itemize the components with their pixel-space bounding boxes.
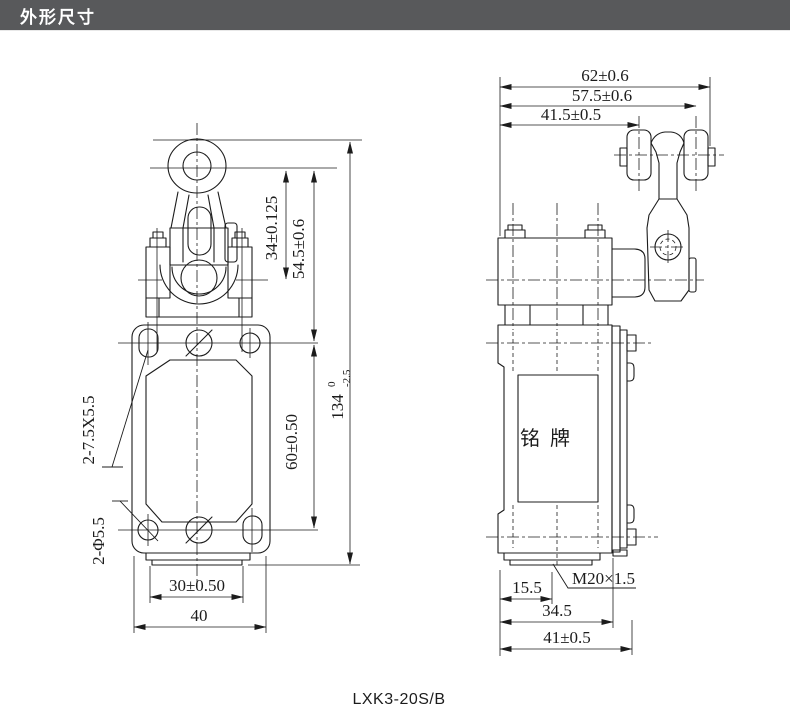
dim-base-depth: 34.5 xyxy=(542,601,572,620)
dimension-drawing: 34±0.125 54.5±0.6 60±0.50 134 0 -2.5 30±… xyxy=(0,0,790,718)
front-body xyxy=(132,325,270,553)
dim-body-width: 40 xyxy=(191,606,208,625)
page-header: 外形尺寸 xyxy=(0,0,790,31)
side-view-drawing: 铭牌 M20×1.5 62±0.6 57.5±0.6 41.5±0.5 15.5… xyxy=(486,66,724,656)
nameplate-label: 铭牌 xyxy=(520,427,580,450)
side-centerlines xyxy=(486,116,724,566)
dim-total-height-tol-upper: 0 xyxy=(326,381,338,387)
front-mounting-holes xyxy=(138,329,262,544)
dim-lever-height: 54.5±0.6 xyxy=(289,219,308,279)
side-base xyxy=(504,550,627,565)
front-head xyxy=(146,223,252,317)
dim-lever-travel: 34±0.125 xyxy=(262,196,281,261)
note-round-holes: 2-Φ5.5 xyxy=(89,517,108,565)
dim-mount-spacing: 60±0.50 xyxy=(282,414,301,470)
dim-total-height: 134 0 -2.5 xyxy=(326,369,353,420)
dim-total-height-main: 134 xyxy=(328,394,347,420)
front-hole-leaders xyxy=(102,350,158,541)
dim-mount-width: 30±0.50 xyxy=(169,576,225,595)
dim-lever-center: 41.5±0.5 xyxy=(541,105,601,124)
page-title: 外形尺寸 xyxy=(0,3,96,28)
dim-thread-spec: M20×1.5 xyxy=(572,569,635,588)
front-view-drawing: 34±0.125 54.5±0.6 60±0.50 134 0 -2.5 30±… xyxy=(79,123,362,633)
model-label: LXK3-20S/B xyxy=(352,691,445,708)
front-dimension-lines xyxy=(134,142,350,633)
dim-total-height-tol-lower: -2.5 xyxy=(341,369,353,387)
side-roller-lever xyxy=(612,130,715,301)
dim-conduit-offset: 15.5 xyxy=(512,578,542,597)
side-head xyxy=(498,225,612,325)
note-slot-holes: 2-7.5X5.5 xyxy=(79,396,98,465)
front-roller-lever xyxy=(168,139,228,265)
front-base xyxy=(146,553,250,565)
dim-roller-center: 57.5±0.6 xyxy=(572,86,632,105)
dim-overall-depth: 41±0.5 xyxy=(543,628,591,647)
dim-overall-width: 62±0.6 xyxy=(581,66,629,85)
